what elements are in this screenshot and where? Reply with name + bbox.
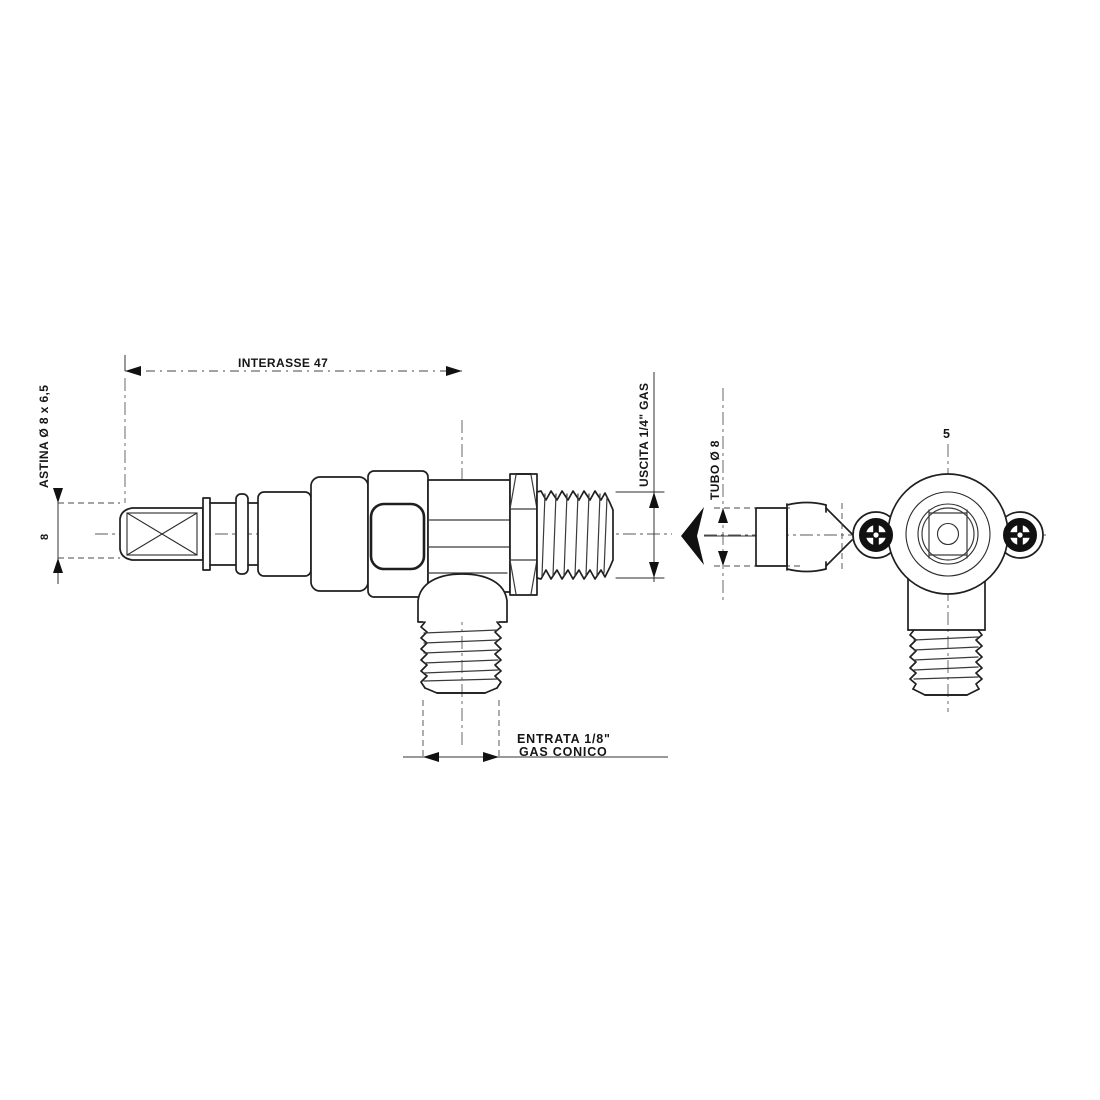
inlet-thread <box>421 622 501 693</box>
gland-block <box>368 471 428 597</box>
screw-left <box>863 522 890 549</box>
entrata-label-line1: ENTRATA 1/8" <box>517 732 611 746</box>
dimension-interasse: INTERASSE 47 <box>125 355 462 376</box>
dim-arrow-up <box>718 508 728 523</box>
body-cone <box>311 477 368 591</box>
dimension-astina: ASTINA Ø 8 x 6,5 8 <box>37 385 120 584</box>
dim-arrow-right <box>483 752 499 762</box>
dim-arrow-up <box>53 558 63 573</box>
part-number-label: 5 <box>943 427 951 441</box>
dim-arrow-down <box>53 488 63 503</box>
flow-direction-arrow <box>681 507 704 565</box>
dimension-uscita: USCITA 1/4" GAS <box>616 372 664 582</box>
entrata-label-line2: GAS CONICO <box>519 745 608 759</box>
hex-collar <box>510 474 537 595</box>
dimension-entrata: ENTRATA 1/8" GAS CONICO <box>403 700 668 762</box>
drawing-page: INTERASSE 47 ASTINA Ø 8 x 6,5 8 <box>0 0 1100 1100</box>
interasse-label: INTERASSE 47 <box>238 356 328 370</box>
stem-cylinder <box>258 492 311 576</box>
dim-arrow-down <box>718 551 728 566</box>
stem-ring <box>236 494 248 574</box>
stem-collar <box>203 498 210 570</box>
tube-sleeve <box>756 508 787 566</box>
dim-arrow-left <box>125 366 141 376</box>
rod-diameter-label: 8 <box>39 533 51 540</box>
valve-technical-drawing: INTERASSE 47 ASTINA Ø 8 x 6,5 8 <box>0 0 1100 1100</box>
body-dome <box>418 574 507 622</box>
screw-right <box>1007 522 1034 549</box>
outlet-thread <box>537 491 613 579</box>
front-stud-thread <box>910 630 982 695</box>
tube-fitting <box>756 503 852 573</box>
astina-label: ASTINA Ø 8 x 6,5 <box>37 385 51 488</box>
uscita-label: USCITA 1/4" GAS <box>637 383 651 487</box>
dim-arrow-down <box>649 562 659 578</box>
dim-arrow-right <box>446 366 462 376</box>
dim-arrow-left <box>423 752 439 762</box>
tubo-label: TUBO Ø 8 <box>708 440 722 500</box>
dim-arrow-up <box>649 492 659 508</box>
valve-side-view <box>120 471 613 693</box>
